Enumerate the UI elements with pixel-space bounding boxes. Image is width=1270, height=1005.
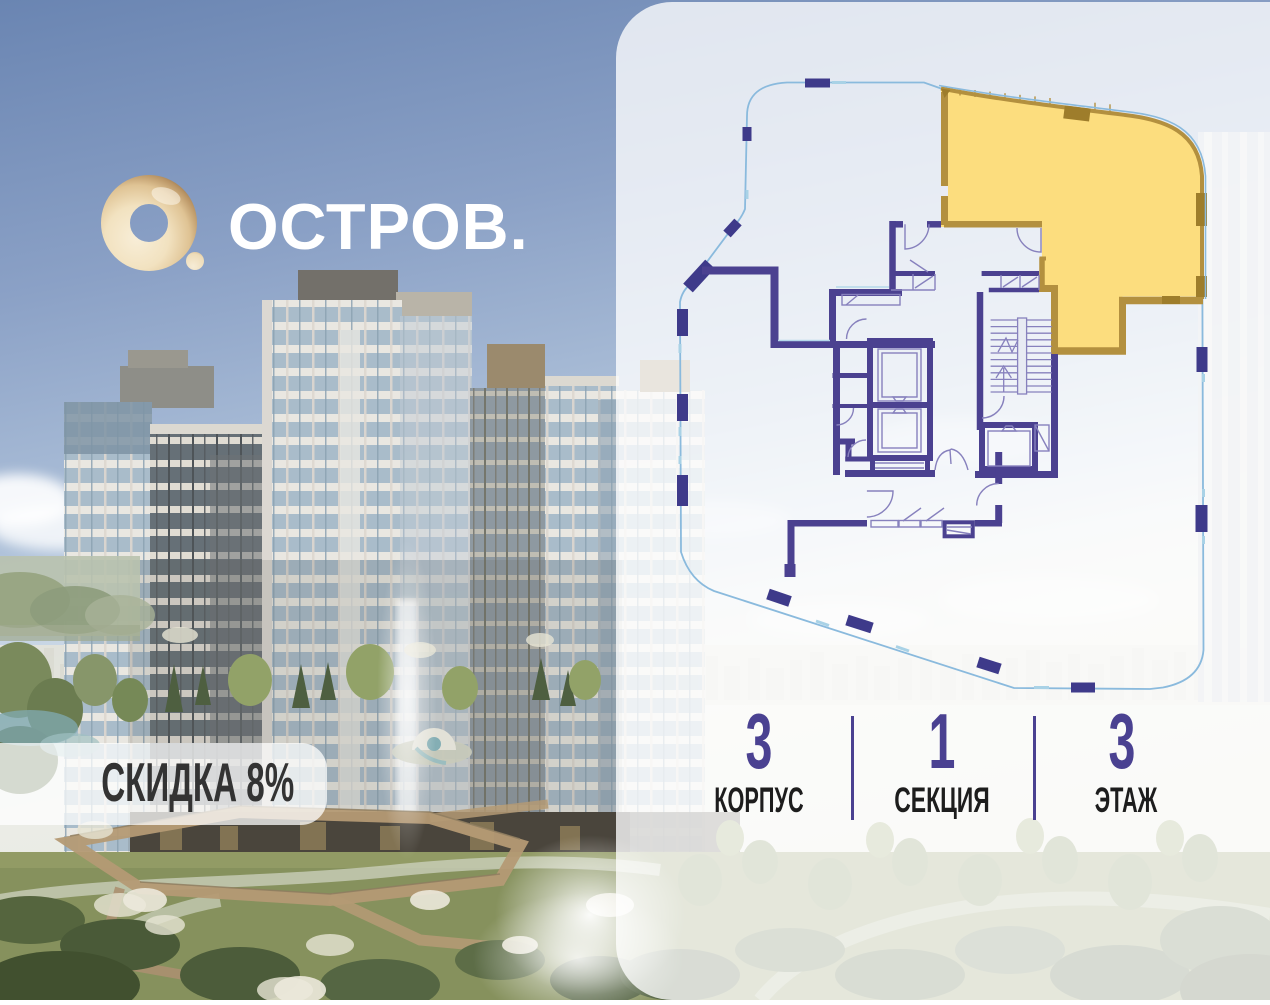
svg-text:ОСТРОВ.: ОСТРОВ.	[228, 190, 529, 263]
